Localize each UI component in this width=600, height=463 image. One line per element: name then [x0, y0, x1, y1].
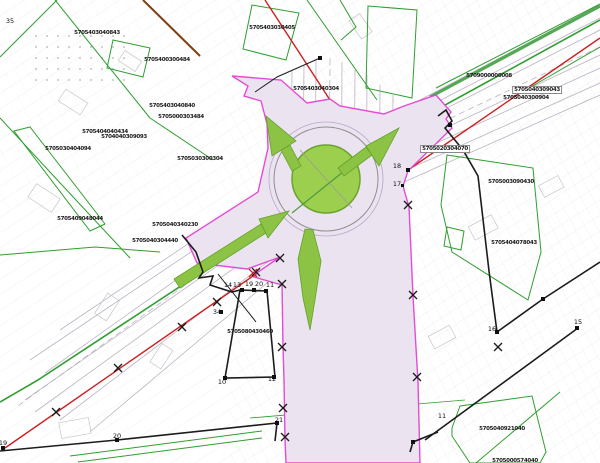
orchard-dots — [35, 28, 125, 86]
cadastral-plan-canvas: 5705403040843570540030048457054030408405… — [0, 0, 600, 463]
plan-drawing — [0, 0, 600, 463]
